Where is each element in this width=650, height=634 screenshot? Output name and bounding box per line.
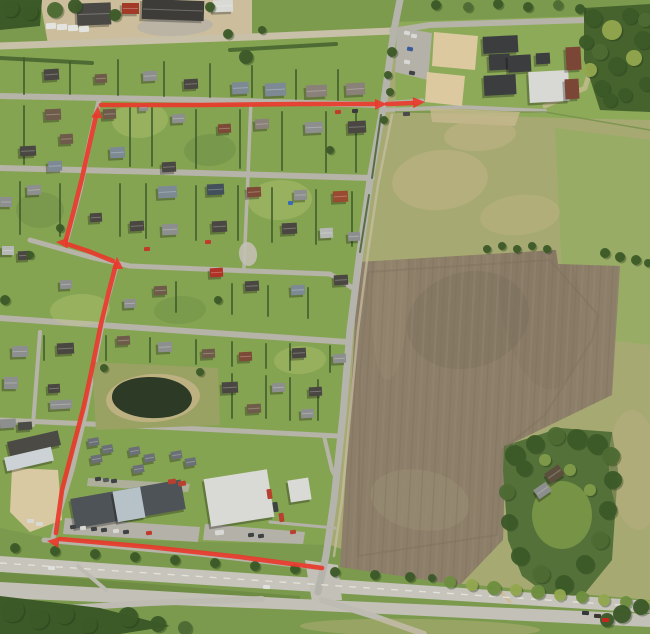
vehicle xyxy=(290,530,296,535)
playground-sand-1 xyxy=(432,32,478,70)
building xyxy=(229,82,249,97)
building xyxy=(345,121,366,136)
roof-ridge xyxy=(335,280,347,281)
building xyxy=(159,162,176,175)
tree xyxy=(258,26,266,34)
building xyxy=(330,191,348,205)
building-roof xyxy=(536,53,551,65)
building-roof xyxy=(18,422,33,431)
building xyxy=(317,228,333,241)
vehicle xyxy=(95,477,101,482)
building xyxy=(41,68,59,82)
building xyxy=(244,187,261,200)
building xyxy=(533,53,550,67)
tree xyxy=(444,576,456,588)
route-seg-east xyxy=(101,104,376,105)
tree xyxy=(622,8,638,24)
building xyxy=(288,285,305,298)
tree xyxy=(526,435,544,453)
roof-ridge xyxy=(111,152,124,153)
tree xyxy=(564,464,576,476)
roof-ridge xyxy=(219,128,230,129)
vehicle xyxy=(46,23,56,30)
building xyxy=(107,147,125,161)
building xyxy=(100,109,116,122)
building-roof xyxy=(287,477,311,502)
tree xyxy=(600,248,610,258)
tree xyxy=(633,599,649,615)
roof-ridge xyxy=(173,118,184,119)
tree xyxy=(428,574,436,582)
tree xyxy=(100,364,108,372)
building xyxy=(204,184,224,198)
building-roof xyxy=(113,487,146,522)
roof-ridge xyxy=(295,195,306,196)
tree xyxy=(532,565,550,583)
tree xyxy=(170,555,180,565)
building xyxy=(114,336,130,348)
vehicle xyxy=(79,26,89,33)
vehicle xyxy=(123,530,129,535)
tree xyxy=(239,50,253,64)
vehicle xyxy=(27,519,34,523)
tree xyxy=(205,2,215,12)
roof-ridge xyxy=(273,387,284,388)
roof-ridge xyxy=(49,166,61,167)
tree xyxy=(27,607,49,629)
building xyxy=(57,134,73,147)
roof-ridge xyxy=(211,272,222,273)
building xyxy=(127,221,144,234)
tree xyxy=(22,4,38,20)
roof-ridge xyxy=(293,353,305,354)
vehicle xyxy=(205,240,211,244)
tree xyxy=(618,88,632,102)
tree xyxy=(223,29,233,39)
tree xyxy=(405,572,415,582)
tree xyxy=(584,484,596,496)
tree xyxy=(554,589,566,601)
tree xyxy=(118,607,138,627)
vehicle xyxy=(335,110,341,114)
building-roof xyxy=(565,47,581,71)
building xyxy=(155,186,177,201)
building xyxy=(563,47,582,73)
roof-ridge xyxy=(214,6,232,7)
vehicle xyxy=(101,528,107,533)
building xyxy=(169,114,185,126)
roof-ridge xyxy=(159,347,171,348)
vehicle xyxy=(68,25,78,32)
tree xyxy=(330,567,340,577)
tree xyxy=(54,604,74,624)
building xyxy=(298,409,314,421)
roof-ridge xyxy=(310,391,321,392)
building-roof xyxy=(483,35,519,54)
building-roof xyxy=(204,469,275,526)
tree xyxy=(626,50,642,66)
roof-ridge xyxy=(163,167,175,168)
tree xyxy=(210,558,220,568)
tree xyxy=(602,447,620,465)
roof-ridge xyxy=(334,196,347,197)
tree xyxy=(547,427,565,445)
vehicle xyxy=(263,585,270,589)
building xyxy=(10,346,29,360)
building xyxy=(285,477,312,505)
building xyxy=(140,71,157,84)
route-seg-east-end xyxy=(387,103,412,104)
tree xyxy=(531,585,545,599)
tree xyxy=(483,245,491,253)
building xyxy=(269,383,285,395)
vehicle xyxy=(113,529,119,534)
tree xyxy=(50,546,60,556)
tree xyxy=(79,615,97,633)
building-roof xyxy=(483,74,516,96)
roof-ridge xyxy=(155,290,166,291)
roof-ridge xyxy=(240,356,251,357)
roof-ridge xyxy=(144,76,156,77)
roof-ridge xyxy=(96,78,106,79)
building xyxy=(199,349,215,361)
building xyxy=(330,354,346,366)
vehicle xyxy=(57,24,67,31)
vehicle xyxy=(288,201,293,205)
tree xyxy=(608,57,626,75)
roof-ridge xyxy=(256,124,268,125)
building xyxy=(480,35,518,56)
building xyxy=(2,377,18,391)
building xyxy=(242,281,259,294)
tree xyxy=(631,255,641,265)
tree xyxy=(513,245,521,253)
tree xyxy=(567,429,587,449)
building-roof xyxy=(508,54,532,72)
tree xyxy=(384,71,392,79)
roof-ridge xyxy=(302,413,313,414)
tree xyxy=(150,616,166,632)
tree xyxy=(501,514,517,530)
tree xyxy=(0,295,10,305)
building xyxy=(215,124,231,136)
tree xyxy=(615,252,625,262)
roof-ridge xyxy=(334,358,345,359)
tree xyxy=(214,296,222,304)
aerial-map-image: Aerial photograph of a residential neigh… xyxy=(0,0,650,634)
tree xyxy=(583,63,597,77)
tree xyxy=(591,531,609,549)
building xyxy=(207,268,223,280)
building xyxy=(209,221,227,235)
tree xyxy=(516,460,532,476)
tree xyxy=(603,93,617,107)
roof-ridge xyxy=(131,226,143,227)
vehicle xyxy=(103,478,109,483)
building xyxy=(481,74,516,98)
roof-ridge xyxy=(283,228,296,229)
tree xyxy=(387,47,397,57)
building xyxy=(45,161,62,174)
building xyxy=(562,79,579,102)
tree xyxy=(130,552,140,562)
tree xyxy=(598,594,610,606)
building xyxy=(343,83,365,98)
vehicle xyxy=(248,533,254,538)
tree xyxy=(109,9,121,21)
roof-ridge xyxy=(118,340,129,341)
tree xyxy=(90,549,100,559)
tree xyxy=(575,4,585,14)
roof-ridge xyxy=(61,139,72,140)
tree xyxy=(196,368,204,376)
aerial-route-screenshot: Aerial photograph of a residential neigh… xyxy=(0,0,650,634)
vehicle xyxy=(70,525,76,530)
tree xyxy=(10,543,20,553)
roof-ridge xyxy=(213,226,226,227)
roof-ridge xyxy=(246,286,258,287)
roof-ridge xyxy=(49,388,59,389)
tree xyxy=(487,581,501,595)
tree xyxy=(466,579,478,591)
roof-ridge xyxy=(248,408,260,409)
building xyxy=(279,223,297,237)
tree xyxy=(431,0,441,10)
lawn-dark-2 xyxy=(16,192,64,228)
tree xyxy=(47,2,63,18)
playground-sand-2 xyxy=(425,72,465,106)
tree xyxy=(613,605,631,623)
building xyxy=(181,79,198,92)
tree xyxy=(370,570,380,580)
tree xyxy=(553,0,563,10)
building xyxy=(42,109,61,123)
tree xyxy=(543,245,551,253)
building xyxy=(139,0,204,23)
building xyxy=(110,487,146,525)
tree xyxy=(326,146,334,154)
tree xyxy=(584,9,602,27)
building xyxy=(15,422,32,433)
building-roof xyxy=(0,418,16,428)
tree xyxy=(599,501,617,519)
tree xyxy=(523,2,533,12)
building xyxy=(219,382,238,396)
building xyxy=(262,82,286,98)
vehicle xyxy=(403,112,410,116)
tree xyxy=(576,591,588,603)
tree xyxy=(510,584,522,596)
vehicle xyxy=(91,527,97,532)
building xyxy=(24,185,41,198)
building xyxy=(505,54,531,75)
building xyxy=(303,84,327,99)
building xyxy=(0,418,16,431)
roof-ridge xyxy=(104,114,115,115)
vehicle xyxy=(36,522,43,526)
building xyxy=(236,352,252,364)
building xyxy=(155,342,172,355)
tree xyxy=(463,2,473,12)
roof-ridge xyxy=(349,236,359,237)
vehicle xyxy=(146,531,152,536)
building xyxy=(120,3,139,16)
tree xyxy=(604,471,622,489)
roof-ridge xyxy=(125,303,135,304)
tree xyxy=(511,547,529,565)
building xyxy=(201,469,274,529)
roof-ridge xyxy=(28,190,40,191)
roof-ridge xyxy=(292,290,304,291)
vehicle xyxy=(602,618,609,622)
vehicle xyxy=(582,611,589,615)
tree xyxy=(0,598,24,622)
building xyxy=(306,387,322,399)
tree xyxy=(250,561,260,571)
roof-ridge xyxy=(61,284,71,285)
vehicle xyxy=(215,530,224,536)
vehicle xyxy=(144,247,150,251)
vehicle xyxy=(352,109,358,113)
vehicle xyxy=(594,614,601,618)
vehicle xyxy=(258,534,264,539)
building xyxy=(252,119,269,132)
tree xyxy=(539,454,551,466)
tree xyxy=(576,555,594,573)
building xyxy=(54,343,74,357)
tree xyxy=(499,484,515,500)
tree xyxy=(528,242,536,250)
vehicle xyxy=(48,566,55,570)
roof-ridge xyxy=(91,217,101,218)
building xyxy=(291,190,307,203)
tree xyxy=(380,116,388,124)
roof-ridge xyxy=(321,233,332,234)
roof-ridge xyxy=(203,353,214,354)
tree xyxy=(498,242,506,250)
building xyxy=(47,399,72,412)
building xyxy=(244,404,261,416)
tree xyxy=(602,20,622,40)
building xyxy=(331,275,348,288)
tree xyxy=(26,251,34,259)
roof-ridge xyxy=(248,192,260,193)
building-roof xyxy=(564,79,579,100)
tree xyxy=(579,35,593,49)
tree xyxy=(386,88,394,96)
tree xyxy=(592,44,608,60)
building xyxy=(289,348,306,361)
vehicle xyxy=(80,526,86,531)
building xyxy=(17,146,36,159)
roof-ridge xyxy=(185,84,197,85)
building xyxy=(302,122,323,136)
building xyxy=(159,224,178,238)
tree xyxy=(56,224,64,232)
vehicle xyxy=(111,479,117,484)
building xyxy=(151,286,167,298)
